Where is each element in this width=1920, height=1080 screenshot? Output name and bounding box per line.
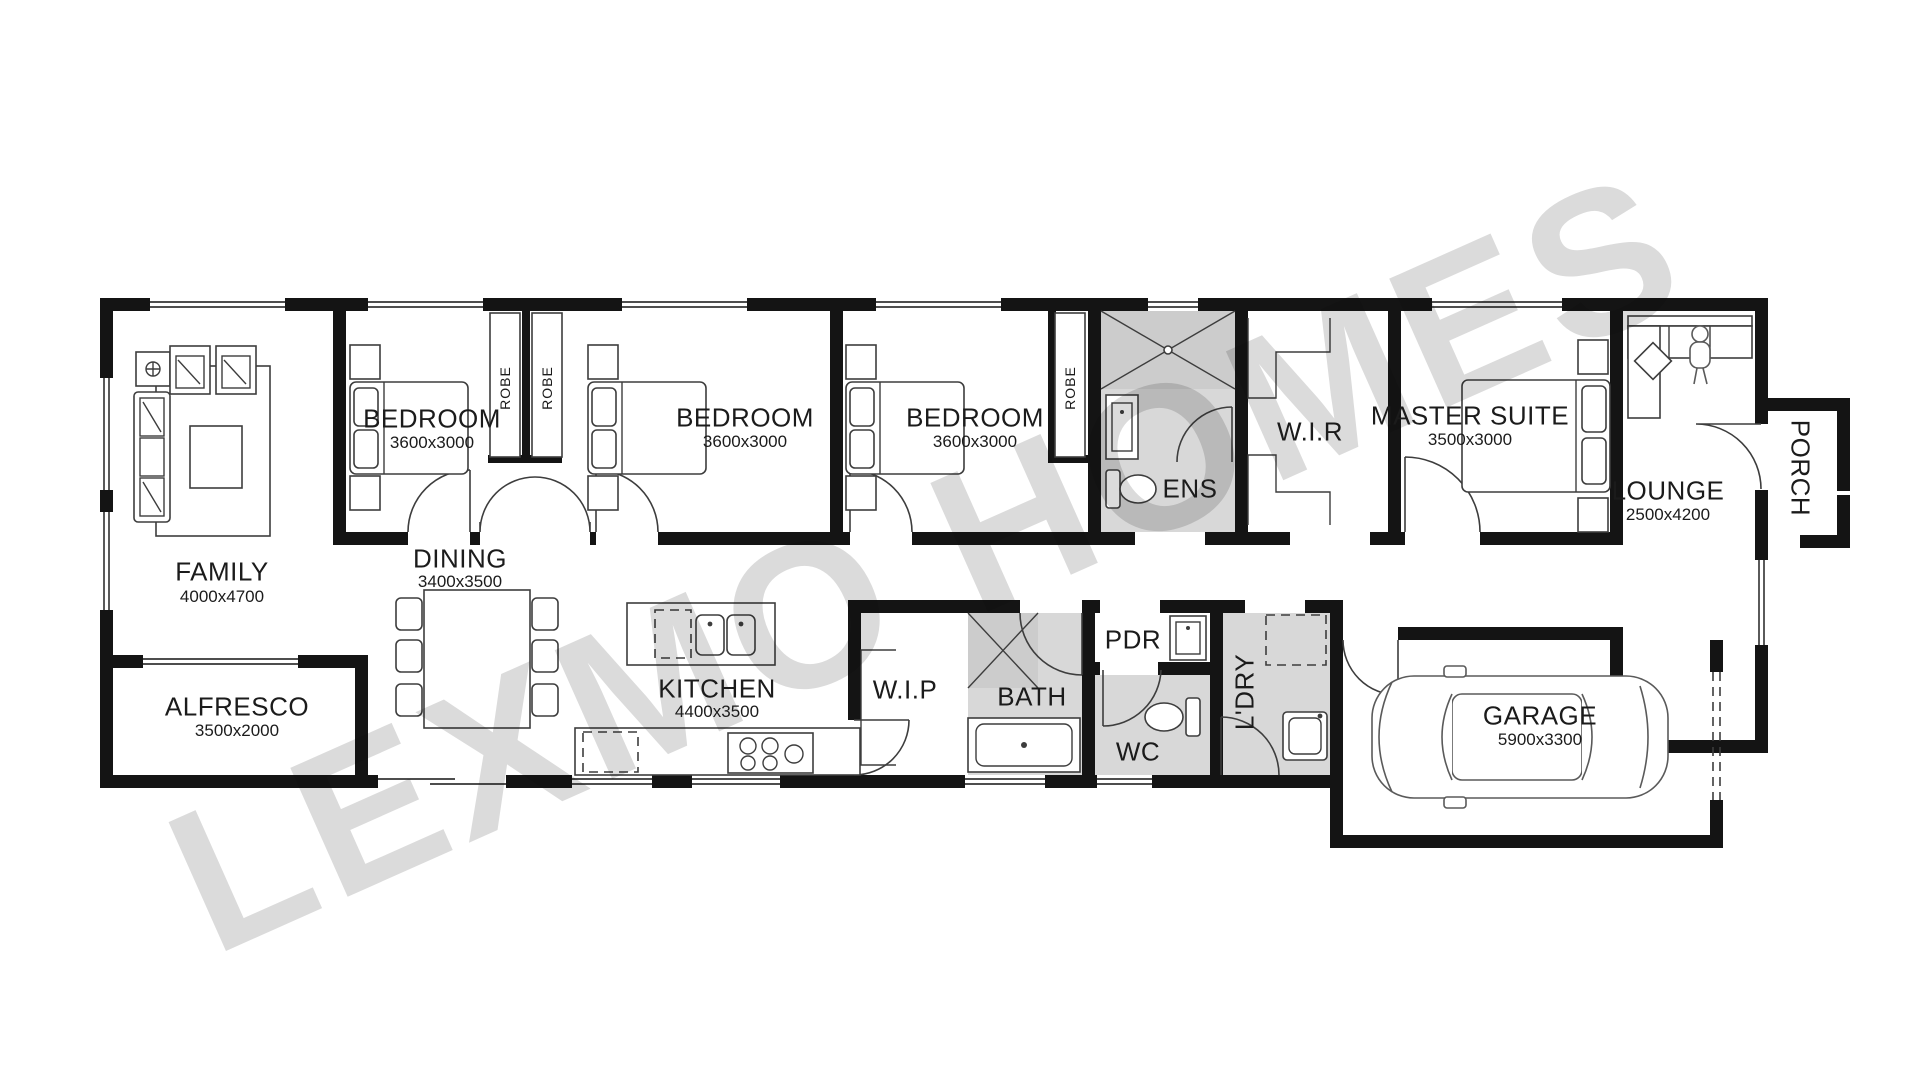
door-wip: [854, 720, 909, 775]
room-dims-dining: 3400x3500: [418, 572, 502, 592]
room-label-family: FAMILY: [175, 557, 269, 588]
room-label-ens: ENS: [1163, 474, 1218, 505]
window-lounge-right: [1755, 560, 1768, 645]
room-label-garage: GARAGE: [1483, 701, 1597, 732]
window-alfresco: [143, 655, 298, 668]
room-label-master: MASTER SUITE: [1371, 401, 1569, 432]
room-label-bath: BATH: [997, 682, 1066, 713]
room-label-wip: W.I.P: [873, 675, 938, 706]
mirror: [1444, 666, 1466, 677]
room-dims-family: 4000x4700: [180, 587, 264, 607]
furniture-family: [134, 346, 270, 536]
window-top-bedroom3: [876, 298, 1001, 311]
room-label-dining: DINING: [413, 544, 507, 575]
double-doors-hall: [480, 477, 590, 532]
room-label-bedroom2: BEDROOM: [676, 403, 814, 434]
robe-label-3: ROBE: [1062, 366, 1078, 410]
room-label-porch: PORCH: [1785, 420, 1816, 516]
window-left-family-1: [100, 378, 113, 490]
room-dims-alfresco: 3500x2000: [195, 721, 279, 741]
window-top-bedroom2: [622, 298, 747, 311]
room-dims-garage: 5900x3300: [1498, 730, 1582, 750]
robe-label-1: ROBE: [497, 366, 513, 410]
window-top-family: [150, 298, 285, 311]
room-label-alfresco: ALFRESCO: [165, 692, 309, 723]
door-bedroom1: [408, 470, 470, 532]
room-dims-bedroom1: 3600x3000: [390, 433, 474, 453]
window-top-bedroom1: [368, 298, 483, 311]
room-label-lounge: LOUNGE: [1612, 476, 1725, 507]
room-label-bedroom3: BEDROOM: [906, 403, 1044, 434]
room-dims-kitchen: 4400x3500: [675, 702, 759, 722]
room-dims-lounge: 2500x4200: [1626, 505, 1710, 525]
room-label-bedroom1: BEDROOM: [363, 404, 501, 435]
room-label-pdr: PDR: [1105, 625, 1161, 656]
room-label-wc: WC: [1116, 737, 1160, 768]
room-label-ldry: L'DRY: [1230, 654, 1261, 730]
floor-plan: LEXMO HOMES FAMILY 4000x4700 ALFRESCO 35…: [0, 0, 1920, 1080]
room-label-kitchen: KITCHEN: [658, 674, 776, 705]
room-dims-master: 3500x3000: [1428, 430, 1512, 450]
window-wc: [1097, 775, 1152, 788]
laundry-tub: [1283, 712, 1327, 760]
coffee-table: [190, 426, 242, 488]
robe-label-2: ROBE: [539, 366, 555, 410]
mirror: [1444, 797, 1466, 808]
window-bath: [965, 775, 1045, 788]
room-label-wir: W.I.R: [1277, 417, 1343, 448]
window-top-ens: [1148, 298, 1198, 311]
garage-roller-door: [1713, 672, 1720, 800]
window-left-family-2: [100, 512, 113, 610]
room-dims-bedroom3: 3600x3000: [933, 432, 1017, 452]
bathtub: [968, 718, 1080, 772]
room-dims-bedroom2: 3600x3000: [703, 432, 787, 452]
